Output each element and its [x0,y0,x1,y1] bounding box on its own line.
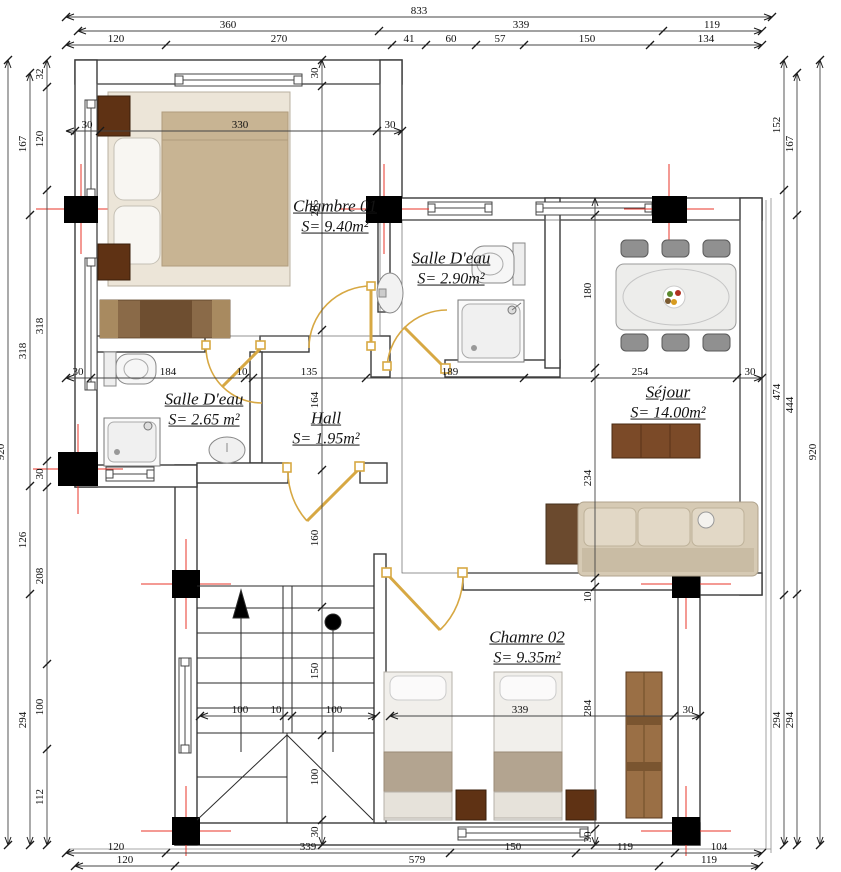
dim-label: 120 [108,841,125,853]
dim-label: 833 [411,5,428,17]
dim-label: 339 [513,19,530,31]
shower-head-icon [144,422,152,430]
dim-label: 30 [745,366,757,378]
dim-arrow [30,73,33,81]
sofa-cushion [692,508,744,546]
food [675,290,681,296]
rug-stripe [100,300,118,338]
rug-stripe [212,300,230,338]
dim-label: 104 [711,841,728,853]
room-name: Chamre 02 [489,627,564,649]
dim-label: 30 [73,366,85,378]
dining-chair [662,240,689,257]
column [64,196,98,223]
room-label: Chamre 02S= 9.35m² [489,627,564,670]
dining-chair [621,334,648,351]
wardrobe-band [626,716,662,725]
dim-label: 150 [505,841,522,853]
dim-label: 134 [698,33,715,45]
nightstand [456,790,486,820]
door-salle-deau-290 [383,310,450,373]
staircase [197,586,374,823]
dim-label: 294 [17,711,29,728]
food [667,291,673,297]
floor-plan-drawing: 8333603391191202704160571501343033030301… [0,0,841,872]
dim-label: 119 [704,19,721,31]
side-table [546,504,580,564]
dim-label: 294 [771,711,783,728]
shower-drain [471,345,477,351]
dim-label: 339 [512,704,529,716]
pillow [500,676,556,700]
dim-label: 30 [82,119,94,131]
room-area: S= 9.35m² [489,649,564,670]
up-arrow-icon [233,590,249,618]
dim-label: 30 [683,704,695,716]
room-name: Hall [292,408,359,430]
room-area: S= 9.40m² [293,218,377,239]
door-chambre01 [309,282,375,350]
room-area: S= 2.65 m² [165,411,244,432]
dim-label: 135 [301,366,318,378]
room-label: SéjourS= 14.00m² [630,382,705,425]
dim-label: 474 [771,383,783,400]
column [172,817,200,845]
food [671,299,677,305]
dim-label: 119 [617,841,634,853]
bed-sheet [494,792,562,818]
dim-label: 30 [309,67,321,79]
dim-label: 150 [309,662,321,679]
dim-label: 100 [309,768,321,785]
dim-label: 294 [784,711,796,728]
room-name: Salle D'eau [412,248,491,270]
food [665,298,671,304]
dim-label: 167 [17,135,29,152]
room-label: Chambre 01S= 9.40m² [293,196,377,239]
bed-blanket [384,752,452,792]
window [458,827,588,840]
dim-label: 920 [0,443,7,460]
window [175,74,302,86]
pillow [390,676,446,700]
toilet-tank [104,352,116,386]
wall [197,463,288,483]
column [58,452,98,486]
sofa-cushion [638,508,690,546]
bed-blanket [162,112,288,266]
room-name: Séjour [630,382,705,404]
bed-sheet [384,792,452,818]
room-name: Salle D'eau [165,389,244,411]
dim-label: 180 [582,282,594,299]
dim-label: 184 [160,366,177,378]
dim-label: 339 [300,841,317,853]
room-label: Salle D'eauS= 2.90m² [412,248,491,291]
tv-cabinet [612,424,700,458]
dining-chair [703,240,730,257]
nightstand [98,244,130,280]
shower-drain [114,449,120,455]
column [172,570,200,598]
wall [250,352,262,463]
dim-label: 126 [17,531,29,548]
door-chamre02 [382,568,467,630]
nightstand [566,790,596,820]
dim-label: 120 [34,130,46,147]
dim-label: 10 [582,591,594,603]
dim-label: 100 [232,704,249,716]
column [652,196,687,223]
dim-label: 208 [34,567,46,584]
dim-label: 10 [237,366,249,378]
dining-chair [703,334,730,351]
dim-label: 30 [34,468,46,480]
dim-label: 100 [326,704,343,716]
dim-label: 330 [232,119,249,131]
room-area: S= 2.90m² [412,270,491,291]
dim-label: 270 [271,33,288,45]
dim-label: 234 [582,469,594,486]
dining-chair [621,240,648,257]
dim-label: 60 [446,33,458,45]
window [85,258,97,390]
window [85,100,97,197]
dim-label: 164 [309,391,321,408]
dim-label: 284 [582,699,594,716]
dim-label: 579 [409,854,426,866]
dim-label: 120 [117,854,134,866]
dim-label: 30 [385,119,397,131]
dim-label: 318 [34,317,46,334]
dim-label: 189 [442,366,459,378]
furniture-chambre01 [98,92,290,338]
dim-label: 10 [271,704,283,716]
rug-stripe [140,300,192,338]
dim-label: 150 [579,33,596,45]
wardrobe-band [626,762,662,771]
dim-label: 160 [309,529,321,546]
dim-arrow [66,17,74,20]
dim-label: 100 [34,698,46,715]
room-area: S= 1.95m² [292,430,359,451]
dim-label: 57 [495,33,507,45]
dim-label: 120 [108,33,125,45]
sofa-cushion [584,508,636,546]
dim-label: 920 [807,443,819,460]
door-hall-stairs [283,462,364,521]
wall [545,198,560,368]
dim-label: 30 [309,826,321,838]
stairs-start-dot-icon [325,614,341,630]
room-area: S= 14.00m² [630,404,705,425]
toilet-tank [513,243,525,285]
room-name: Chambre 01 [293,196,377,218]
dim-label: 254 [632,366,649,378]
sofa-back [582,548,754,572]
bed-blanket [494,752,562,792]
round-side-table [698,512,714,528]
room-label: HallS= 1.95m² [292,408,359,451]
furniture-chamre02 [384,672,662,820]
sink-tap [379,289,386,297]
room-label: Salle D'eauS= 2.65 m² [165,389,244,432]
nightstand [98,96,130,136]
dim-arrow [66,378,74,381]
wall [445,360,560,377]
dim-label: 32 [34,69,46,80]
dim-label: 444 [784,396,796,413]
column [672,817,700,845]
window [428,202,492,215]
floor-plan-canvas: 8333603391191202704160571501343033030301… [0,0,841,872]
dim-label: 167 [784,135,796,152]
dim-arrow [78,31,86,34]
wall [260,336,309,352]
dim-label: 152 [771,117,783,134]
dim-label: 360 [220,19,237,31]
dim-label: 30 [582,831,594,843]
dim-label: 318 [17,342,29,359]
pillow [114,138,160,200]
dim-label: 119 [701,854,718,866]
dim-label: 112 [34,789,46,805]
dining-chair [662,334,689,351]
dim-label: 41 [404,33,415,45]
window [179,658,191,753]
